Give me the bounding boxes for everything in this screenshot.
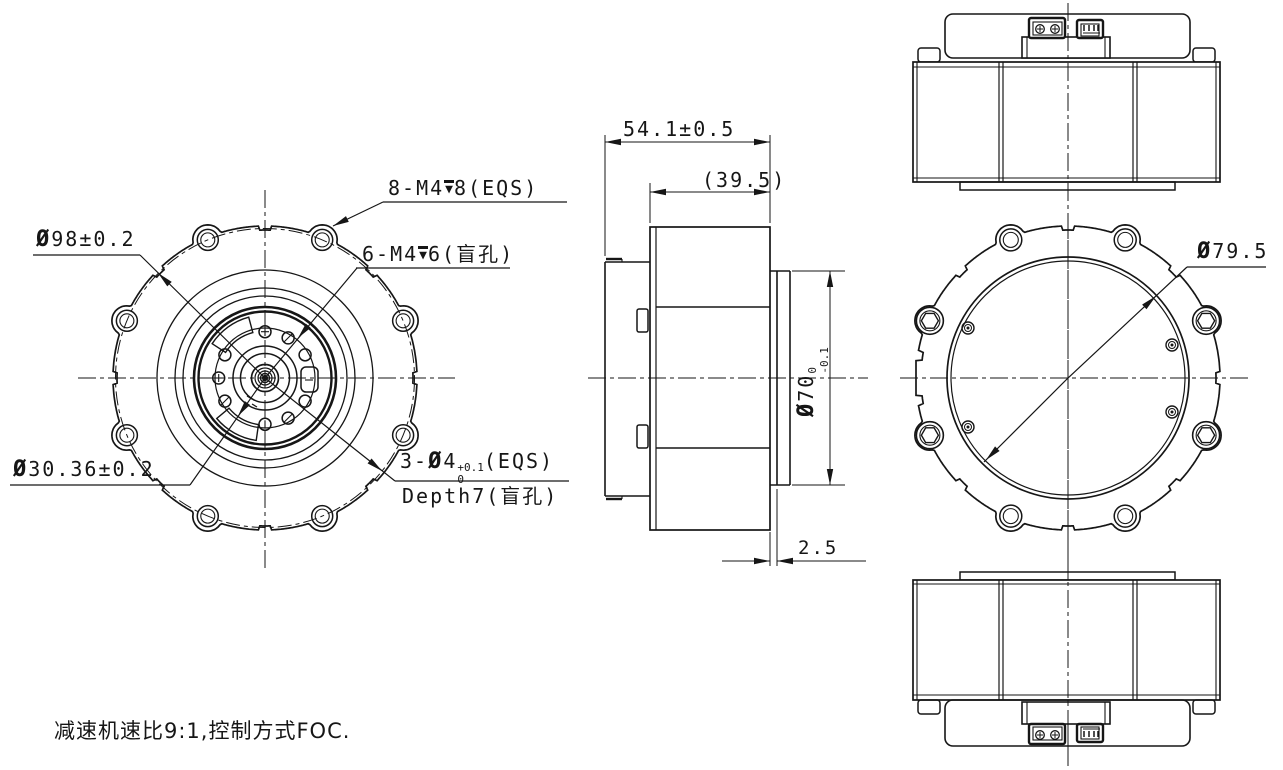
dim-text: 70	[794, 374, 818, 402]
callout-text: 4	[443, 449, 457, 473]
callout-8xM4-holes: 8-M4▼8(EQS)	[388, 177, 538, 199]
dim-text: 79.5	[1212, 239, 1268, 263]
diameter-symbol: Ø	[13, 457, 28, 482]
diameter-symbol: Ø	[428, 449, 443, 474]
engineering-drawing-sheet: 8-M4▼8(EQS) 6-M4▼6(盲孔) Ø98±0.2 Ø30.36±0.…	[0, 0, 1283, 770]
callout-text: 8(EQS)	[454, 176, 538, 200]
dim-text: 30.36±0.2	[28, 457, 154, 481]
callout-text: 6(盲孔)	[428, 242, 514, 266]
diameter-symbol: Ø	[794, 402, 819, 417]
depth-symbol-icon: ▼	[444, 180, 454, 197]
callout-text: Depth7(盲孔)	[402, 484, 558, 508]
callout-pin-depth: Depth7(盲孔)	[402, 485, 558, 507]
drawing-note: 减速机速比9:1,控制方式FOC.	[54, 715, 350, 745]
tolerance-stack: 0-0.1	[807, 347, 831, 374]
dim-flange-diameter: Ø98±0.2	[36, 228, 136, 252]
dim-body-length: (39.5)	[702, 169, 786, 191]
dim-overall-length: 54.1±0.5	[623, 118, 735, 140]
depth-symbol-icon: ▼	[418, 246, 428, 263]
dim-flange-thickness: 2.5	[798, 538, 838, 559]
callout-text: 3-	[400, 449, 428, 473]
diameter-symbol: Ø	[1197, 239, 1212, 264]
callout-text: 6-M4	[362, 242, 418, 266]
tolerance-stack: +0.10	[457, 462, 484, 486]
callout-6xM4-holes: 6-M4▼6(盲孔)	[362, 243, 514, 265]
callout-text: (EQS)	[484, 449, 554, 473]
dim-rotor-diameter: Ø79.5	[1197, 240, 1268, 264]
diameter-symbol: Ø	[36, 227, 51, 252]
dim-text: 98±0.2	[51, 227, 135, 251]
dim-text: (39.5)	[702, 168, 786, 192]
callout-3x-pin-holes: 3-Ø4+0.10(EQS)	[400, 450, 554, 486]
dim-hole-circle-diameter: Ø30.36±0.2	[13, 458, 155, 482]
note-text: 减速机速比9:1,控制方式FOC.	[54, 719, 350, 743]
dim-pilot-diameter: Ø700-0.1	[795, 317, 831, 447]
dim-text: 54.1±0.5	[623, 117, 735, 141]
technical-drawing-canvas	[0, 0, 1283, 770]
tolerance-lower: -0.1	[819, 347, 831, 374]
callout-text: 8-M4	[388, 176, 444, 200]
dim-text: 2.5	[798, 537, 838, 559]
